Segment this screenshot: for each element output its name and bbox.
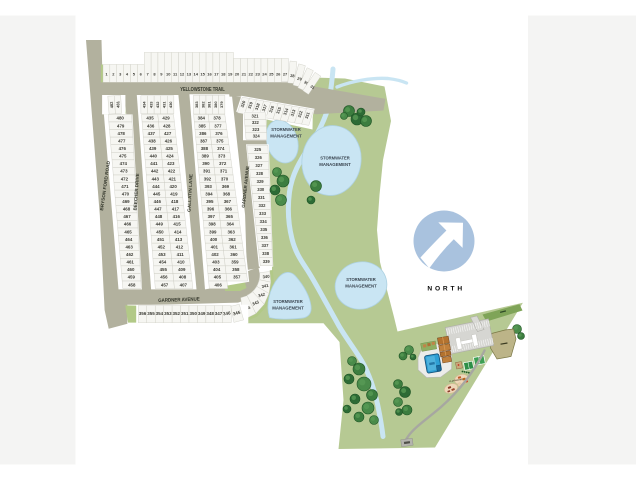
svg-text:457: 457 [161, 282, 169, 287]
svg-text:332: 332 [258, 203, 266, 208]
svg-text:391: 391 [203, 169, 211, 174]
svg-text:452: 452 [158, 244, 166, 249]
svg-text:464: 464 [125, 237, 133, 242]
svg-text:390: 390 [202, 161, 210, 166]
svg-text:349: 349 [198, 311, 206, 316]
svg-text:10: 10 [166, 72, 171, 77]
svg-text:12: 12 [180, 72, 185, 77]
svg-text:20: 20 [235, 72, 240, 77]
svg-text:444: 444 [152, 184, 160, 189]
svg-text:334: 334 [260, 219, 268, 224]
svg-text:426: 426 [165, 138, 173, 143]
svg-text:330: 330 [257, 187, 265, 192]
svg-text:474: 474 [120, 161, 128, 166]
svg-text:430: 430 [168, 101, 173, 108]
svg-text:446: 446 [154, 199, 162, 204]
svg-text:374: 374 [217, 146, 225, 151]
svg-text:363: 363 [227, 229, 235, 234]
svg-text:408: 408 [179, 275, 187, 280]
svg-text:333: 333 [259, 211, 267, 216]
svg-text:454: 454 [159, 260, 167, 265]
svg-text:409: 409 [178, 267, 186, 272]
svg-text:384: 384 [198, 116, 206, 121]
svg-text:369: 369 [222, 184, 230, 189]
svg-text:21: 21 [242, 72, 247, 77]
svg-text:373: 373 [218, 154, 226, 159]
svg-text:434: 434 [142, 101, 147, 108]
svg-text:412: 412 [176, 244, 184, 249]
svg-text:362: 362 [228, 237, 236, 242]
svg-text:481: 481 [115, 100, 121, 108]
svg-text:449: 449 [156, 222, 164, 227]
svg-text:N O R T H: N O R T H [427, 285, 462, 292]
svg-text:351: 351 [181, 311, 189, 316]
svg-text:394: 394 [205, 191, 213, 196]
svg-text:25: 25 [269, 72, 274, 77]
svg-text:375: 375 [216, 138, 224, 143]
svg-text:14: 14 [194, 72, 199, 77]
svg-text:365: 365 [226, 214, 234, 219]
svg-text:MANAGEMENT: MANAGEMENT [272, 306, 304, 311]
svg-text:27: 27 [283, 72, 288, 77]
svg-text:323: 323 [252, 127, 260, 132]
svg-text:400: 400 [210, 237, 218, 242]
svg-text:461: 461 [127, 260, 135, 265]
svg-text:17: 17 [214, 72, 219, 77]
svg-text:13: 13 [187, 72, 192, 77]
svg-text:455: 455 [160, 267, 168, 272]
svg-text:451: 451 [157, 237, 165, 242]
svg-text:482: 482 [109, 101, 115, 109]
svg-text:403: 403 [212, 260, 220, 265]
svg-text:328: 328 [256, 171, 264, 176]
svg-text:335: 335 [260, 227, 268, 232]
svg-text:392: 392 [204, 176, 212, 181]
svg-text:441: 441 [150, 161, 158, 166]
svg-text:469: 469 [122, 199, 130, 204]
svg-text:361: 361 [229, 244, 237, 249]
svg-text:340: 340 [262, 274, 270, 280]
svg-text:22: 22 [248, 72, 253, 77]
svg-text:395: 395 [206, 199, 214, 204]
svg-text:367: 367 [224, 199, 232, 204]
svg-text:350: 350 [189, 311, 197, 316]
svg-text:MANAGEMENT: MANAGEMENT [345, 284, 377, 289]
svg-text:389: 389 [201, 154, 209, 159]
svg-text:321: 321 [252, 114, 260, 119]
svg-text:399: 399 [209, 229, 217, 234]
svg-text:475: 475 [119, 154, 127, 159]
svg-text:353: 353 [164, 311, 172, 316]
svg-text:18: 18 [221, 72, 226, 77]
svg-text:476: 476 [119, 146, 127, 151]
svg-text:406: 406 [214, 282, 222, 287]
svg-text:404: 404 [213, 267, 221, 272]
svg-text:378: 378 [213, 116, 221, 121]
svg-text:386: 386 [199, 131, 207, 136]
svg-text:325: 325 [254, 147, 262, 152]
svg-text:468: 468 [123, 207, 131, 212]
svg-text:358: 358 [232, 267, 240, 272]
svg-text:336: 336 [261, 235, 269, 240]
svg-text:324: 324 [253, 134, 261, 139]
svg-text:425: 425 [166, 146, 174, 151]
svg-text:478: 478 [118, 131, 126, 136]
svg-text:470: 470 [122, 191, 130, 196]
svg-text:436: 436 [147, 123, 155, 128]
svg-text:467: 467 [123, 214, 131, 219]
svg-text:442: 442 [151, 169, 159, 174]
svg-text:MANAGEMENT: MANAGEMENT [319, 162, 351, 167]
svg-text:359: 359 [231, 260, 239, 265]
svg-text:STORMWATER: STORMWATER [271, 127, 301, 132]
svg-text:YELLOWSTONE TRAIL: YELLOWSTONE TRAIL [180, 87, 225, 93]
svg-text:407: 407 [180, 282, 188, 287]
svg-text:371: 371 [220, 169, 228, 174]
svg-text:388: 388 [201, 146, 209, 151]
svg-text:419: 419 [170, 191, 178, 196]
svg-text:448: 448 [155, 214, 163, 219]
svg-text:435: 435 [146, 116, 154, 121]
svg-text:417: 417 [172, 207, 180, 212]
svg-text:355: 355 [147, 311, 155, 316]
svg-text:356: 356 [139, 311, 147, 316]
svg-text:466: 466 [124, 222, 132, 227]
svg-text:443: 443 [152, 176, 160, 181]
svg-text:339: 339 [263, 259, 271, 264]
svg-text:424: 424 [166, 154, 174, 159]
svg-text:431: 431 [162, 101, 167, 108]
svg-text:456: 456 [160, 275, 168, 280]
svg-text:STORMWATER: STORMWATER [320, 156, 350, 161]
svg-text:352: 352 [173, 311, 181, 316]
svg-text:401: 401 [211, 244, 219, 249]
svg-text:354: 354 [156, 311, 164, 316]
svg-text:15: 15 [200, 72, 205, 77]
svg-text:326: 326 [255, 155, 263, 160]
svg-text:418: 418 [171, 199, 179, 204]
svg-text:24: 24 [262, 72, 267, 77]
svg-text:479: 479 [117, 123, 125, 128]
svg-text:370: 370 [221, 176, 229, 181]
svg-text:410: 410 [177, 260, 185, 265]
svg-text:413: 413 [175, 237, 183, 242]
svg-text:445: 445 [153, 191, 161, 196]
svg-text:421: 421 [169, 176, 177, 181]
svg-text:432: 432 [155, 101, 160, 108]
svg-text:463: 463 [125, 244, 133, 249]
svg-text:383: 383 [194, 101, 199, 108]
svg-text:460: 460 [127, 267, 135, 272]
svg-text:338: 338 [262, 251, 270, 256]
svg-text:377: 377 [214, 123, 222, 128]
svg-text:MANAGEMENT: MANAGEMENT [270, 134, 302, 139]
svg-text:331: 331 [258, 195, 266, 200]
svg-text:473: 473 [120, 169, 128, 174]
svg-text:366: 366 [225, 207, 233, 212]
svg-text:477: 477 [118, 138, 126, 143]
svg-text:415: 415 [173, 222, 181, 227]
svg-text:472: 472 [121, 176, 129, 181]
svg-text:414: 414 [174, 229, 182, 234]
svg-text:357: 357 [233, 275, 241, 280]
svg-text:402: 402 [211, 252, 219, 257]
svg-text:387: 387 [200, 138, 208, 143]
svg-text:379: 379 [219, 101, 224, 108]
svg-text:396: 396 [207, 207, 215, 212]
svg-text:385: 385 [198, 123, 206, 128]
svg-text:397: 397 [208, 214, 216, 219]
svg-text:393: 393 [205, 184, 213, 189]
svg-text:372: 372 [219, 161, 227, 166]
svg-text:471: 471 [121, 184, 129, 189]
svg-text:329: 329 [257, 179, 265, 184]
svg-text:465: 465 [124, 229, 132, 234]
svg-text:327: 327 [255, 163, 263, 168]
svg-text:453: 453 [158, 252, 166, 257]
svg-text:23: 23 [255, 72, 260, 77]
svg-text:480: 480 [117, 116, 125, 121]
svg-text:450: 450 [156, 229, 164, 234]
svg-text:462: 462 [126, 252, 134, 257]
svg-text:416: 416 [173, 214, 181, 219]
svg-text:347: 347 [215, 311, 223, 316]
svg-text:428: 428 [163, 123, 171, 128]
svg-text:423: 423 [167, 161, 175, 166]
svg-text:337: 337 [261, 243, 269, 248]
svg-text:422: 422 [168, 169, 176, 174]
svg-text:459: 459 [128, 275, 136, 280]
svg-text:STORMWATER: STORMWATER [346, 277, 376, 282]
svg-text:458: 458 [128, 282, 136, 287]
svg-text:19: 19 [228, 72, 233, 77]
svg-text:26: 26 [276, 72, 281, 77]
svg-text:447: 447 [154, 207, 162, 212]
svg-text:322: 322 [252, 120, 260, 125]
svg-text:STORMWATER: STORMWATER [273, 299, 303, 304]
svg-text:381: 381 [207, 101, 212, 108]
svg-text:368: 368 [223, 191, 231, 196]
svg-text:411: 411 [177, 252, 185, 257]
svg-text:348: 348 [206, 311, 214, 316]
svg-text:437: 437 [148, 131, 156, 136]
svg-text:439: 439 [149, 146, 157, 151]
svg-text:427: 427 [164, 131, 172, 136]
svg-text:364: 364 [227, 222, 235, 227]
svg-text:398: 398 [208, 222, 216, 227]
svg-text:382: 382 [200, 101, 205, 108]
svg-text:405: 405 [214, 275, 222, 280]
svg-text:376: 376 [215, 131, 223, 136]
svg-text:440: 440 [150, 154, 158, 159]
svg-text:360: 360 [230, 252, 238, 257]
svg-text:380: 380 [213, 101, 218, 108]
svg-text:420: 420 [169, 184, 177, 189]
svg-text:429: 429 [162, 116, 170, 121]
svg-text:16: 16 [207, 72, 212, 77]
svg-text:433: 433 [148, 101, 153, 108]
svg-text:438: 438 [148, 138, 156, 143]
